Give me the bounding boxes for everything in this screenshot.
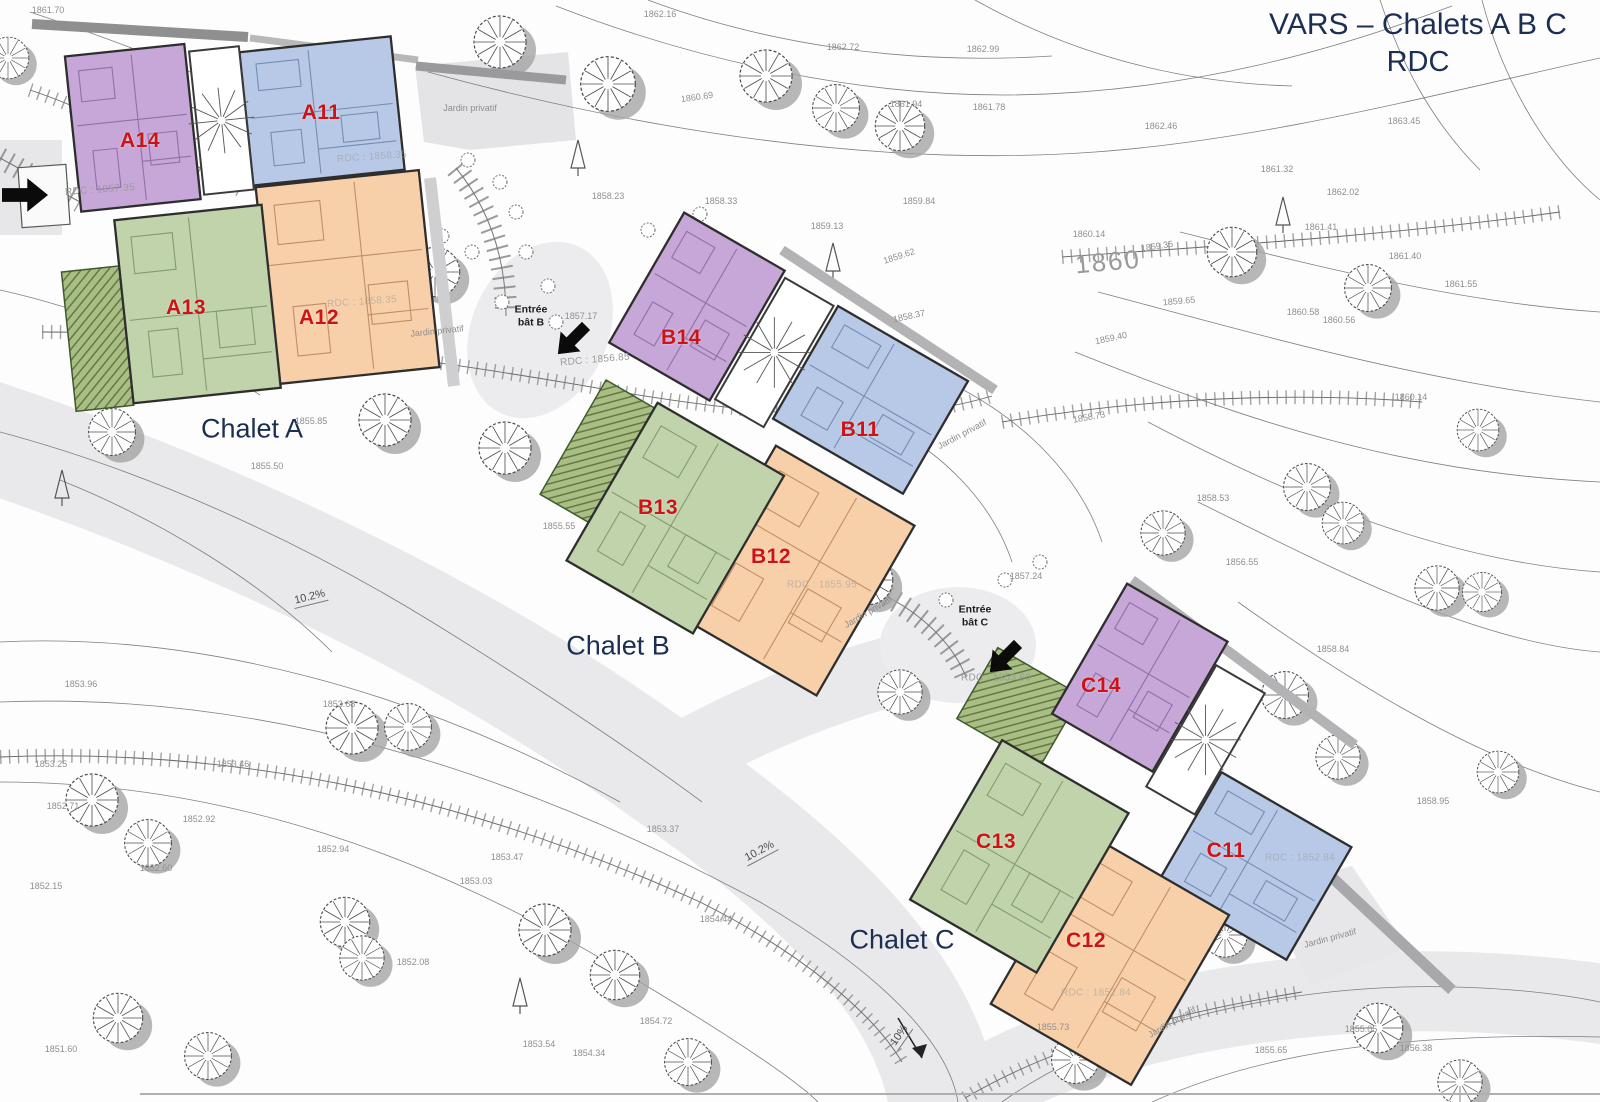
unit-A12-area <box>256 170 440 384</box>
tree-icon <box>740 50 802 110</box>
tree-icon <box>326 702 388 762</box>
pine-tree-icon <box>513 978 527 1014</box>
site-plan-drawing <box>0 0 1600 1102</box>
tree-icon <box>0 37 37 85</box>
tree-icon <box>875 101 934 158</box>
pine-tree-icon <box>1276 197 1290 233</box>
tree-icon <box>125 820 181 874</box>
tree-icon <box>665 1039 721 1093</box>
tree-icon <box>1316 735 1369 786</box>
tree-icon <box>93 993 152 1050</box>
tree-icon <box>1345 265 1401 319</box>
tree-icon <box>359 394 421 454</box>
tree-icon <box>1457 409 1507 457</box>
tree-icon <box>590 950 649 1007</box>
pine-tree-icon <box>571 140 585 176</box>
tree-icon <box>581 57 646 120</box>
chalet-A-building <box>39 21 440 411</box>
tree-icon <box>479 422 541 482</box>
tree-icon <box>1438 1060 1491 1102</box>
tree-icon <box>385 704 441 758</box>
tree-icon <box>813 85 869 139</box>
tree-icon <box>1477 751 1527 799</box>
tree-icon <box>1207 227 1266 284</box>
tree-icon <box>1141 511 1194 562</box>
tree-icon <box>519 904 581 964</box>
site-plan-page: VARS – Chalets A B C RDC Chalet AChalet … <box>0 0 1600 1102</box>
tree-icon <box>185 1033 241 1087</box>
tree-icon <box>1322 502 1372 550</box>
tree-icon <box>1415 566 1468 617</box>
tree-icon <box>340 936 393 987</box>
tree-icon <box>66 774 128 834</box>
pine-tree-icon <box>826 243 840 279</box>
tree-icon <box>1463 573 1510 618</box>
